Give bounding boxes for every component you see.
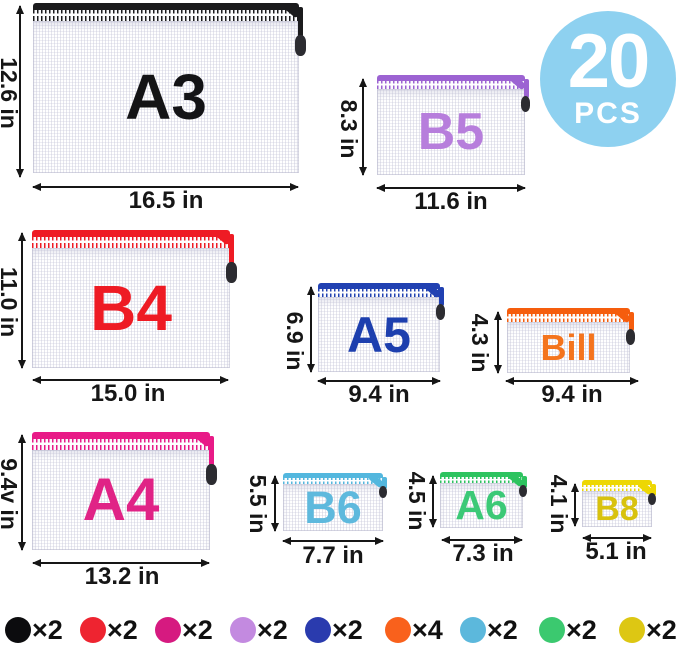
height-label: 6.9 in — [283, 291, 307, 391]
width-label: 9.4 in — [279, 382, 479, 407]
mesh-body: B5 — [377, 89, 525, 175]
count-badge: 20 PCS — [540, 11, 676, 147]
legend-quantity: ×2 — [107, 617, 138, 644]
pouch-size-label: A5 — [347, 310, 411, 360]
zipper-teeth — [32, 439, 210, 450]
width-label: 16.5 in — [66, 188, 266, 213]
legend-quantity: ×2 — [182, 617, 213, 644]
height-arrow — [362, 79, 364, 175]
zipper-teeth — [318, 289, 440, 297]
legend-quantity: ×2 — [257, 617, 288, 644]
pouch-b6: B6 — [283, 473, 383, 531]
mesh-body: A6 — [440, 483, 523, 528]
width-label: 5.1 in — [516, 539, 679, 564]
legend-item-sky-blue: ×2 — [460, 615, 518, 645]
legend-quantity: ×2 — [32, 617, 63, 644]
height-label: 9.4v in — [0, 444, 21, 544]
color-dot-sky-blue — [460, 617, 486, 643]
mesh-body: A4 — [32, 450, 210, 550]
legend-item-black: ×2 — [5, 615, 63, 645]
pouch-a3: A3 — [33, 3, 299, 173]
color-dot-black — [5, 617, 31, 643]
legend-item-violet: ×2 — [230, 615, 288, 645]
legend-item-green: ×2 — [539, 615, 597, 645]
height-label: 4.5 in — [405, 451, 429, 551]
color-dot-green — [539, 617, 565, 643]
color-dot-red — [80, 617, 106, 643]
width-label: 9.4 in — [472, 382, 672, 407]
width-label: 15.0 in — [28, 381, 228, 406]
pouch-size-label: Bill — [540, 330, 596, 366]
color-dot-yellow — [619, 617, 645, 643]
legend-quantity: ×2 — [332, 617, 363, 644]
product-infographic: A3 12.6 in 16.5 in B5 8.3 in 11.6 in 20 … — [0, 0, 679, 647]
zipper-teeth — [377, 81, 525, 89]
pouch-size-label: A6 — [455, 485, 507, 526]
mesh-body: B6 — [283, 484, 383, 531]
height-label: 8.3 in — [337, 79, 361, 179]
color-dot-magenta — [155, 617, 181, 643]
badge-count: 20 — [568, 29, 649, 96]
pouch-size-label: A3 — [125, 65, 207, 129]
mesh-body: B8 — [582, 491, 652, 527]
pouch-a6: A6 — [440, 472, 523, 528]
legend-quantity: ×2 — [566, 617, 597, 644]
legend-quantity: ×2 — [487, 617, 518, 644]
height-arrow — [432, 476, 434, 527]
pouch-a4: A4 — [32, 432, 210, 550]
height-label: 12.6 in — [0, 43, 21, 143]
pouch-size-label: B8 — [595, 492, 638, 526]
height-arrow — [274, 476, 276, 531]
height-arrow — [310, 287, 312, 372]
legend-quantity: ×4 — [412, 617, 443, 644]
zipper-teeth — [33, 10, 299, 21]
color-dot-violet — [230, 617, 256, 643]
height-arrow — [574, 484, 576, 526]
legend-item-yellow: ×2 — [619, 615, 677, 645]
pouch-size-label: B6 — [304, 485, 362, 530]
color-dot-orange — [385, 617, 411, 643]
width-label: 13.2 in — [22, 564, 222, 589]
pouch-bill: Bill — [507, 308, 630, 373]
zipper-tape — [32, 230, 230, 237]
mesh-body: B4 — [32, 248, 230, 368]
mesh-body: A3 — [33, 21, 299, 173]
mesh-body: A5 — [318, 297, 440, 372]
zipper-teeth — [32, 237, 230, 248]
zipper-teeth — [507, 314, 630, 322]
legend-item-orange: ×4 — [385, 615, 443, 645]
pouch-size-label: A4 — [83, 470, 160, 530]
pouch-b4: B4 — [32, 230, 230, 368]
width-label: 11.6 in — [351, 189, 551, 214]
badge-unit: PCS — [574, 99, 642, 129]
legend-quantity: ×2 — [646, 617, 677, 644]
pouch-size-label: B4 — [90, 276, 172, 340]
height-label: 5.5 in — [246, 454, 270, 554]
zipper-tape — [33, 3, 299, 10]
pouch-a5: A5 — [318, 283, 440, 372]
color-dot-blue — [305, 617, 331, 643]
height-arrow — [497, 312, 499, 373]
legend-item-blue: ×2 — [305, 615, 363, 645]
pouch-b5: B5 — [377, 75, 525, 175]
pouch-b8: B8 — [582, 480, 652, 527]
mesh-body: Bill — [507, 322, 630, 373]
legend-item-red: ×2 — [80, 615, 138, 645]
legend-item-magenta: ×2 — [155, 615, 213, 645]
pouch-size-label: B5 — [418, 106, 484, 158]
zipper-tape — [32, 432, 210, 439]
height-label: 4.3 in — [468, 293, 492, 393]
height-label: 11.0 in — [0, 252, 21, 352]
